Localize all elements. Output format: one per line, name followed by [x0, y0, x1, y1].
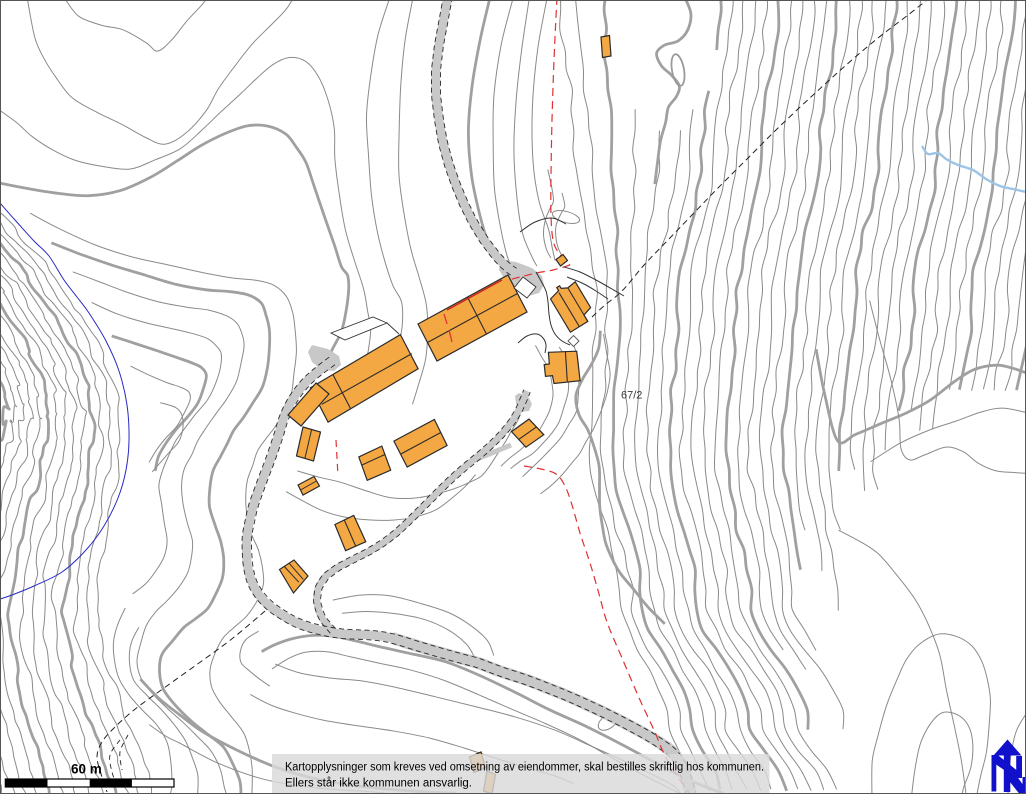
svg-text:67/2: 67/2: [621, 390, 642, 402]
svg-text:Ellers står ikke kommunen ansv: Ellers står ikke kommunen ansvarlig.: [285, 778, 472, 790]
svg-text:60 m: 60 m: [71, 762, 102, 777]
svg-text:Kartopplysninger som kreves ve: Kartopplysninger som kreves ved omsetnin…: [285, 762, 764, 774]
